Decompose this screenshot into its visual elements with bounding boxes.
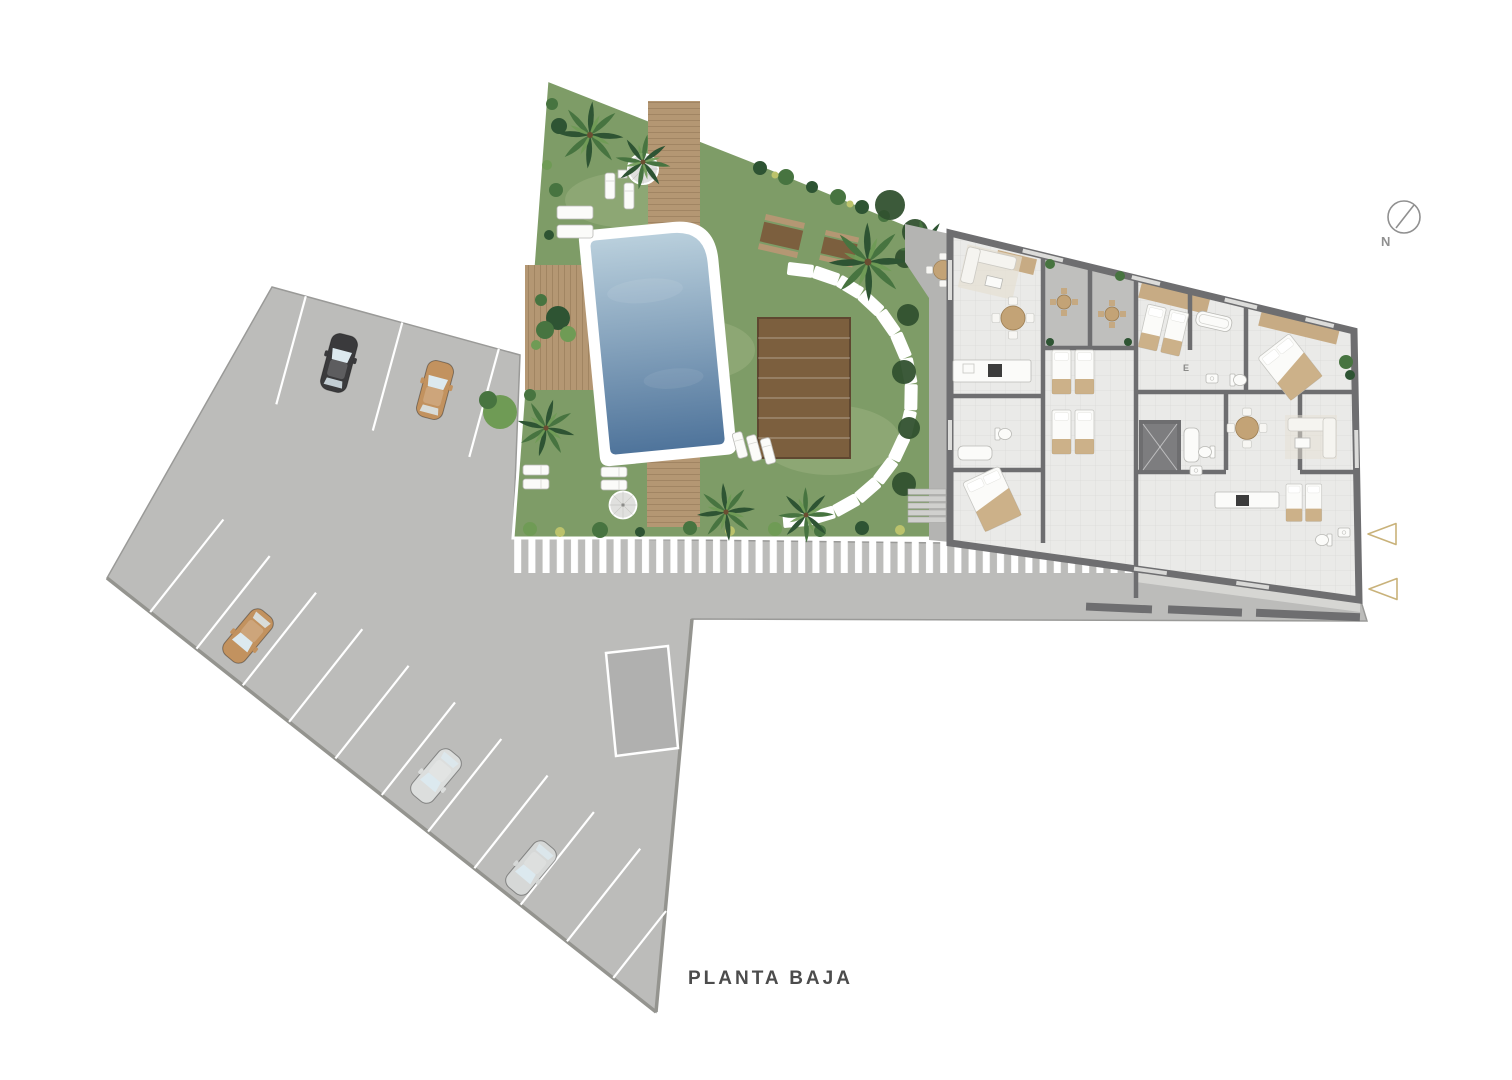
lounger xyxy=(557,225,593,238)
entry-arrows xyxy=(1368,524,1397,600)
north-label: N xyxy=(1381,234,1390,249)
sun-umbrella-2 xyxy=(610,492,637,519)
sofa-living-2 xyxy=(1285,415,1337,459)
ground-marker-rectangle xyxy=(606,646,678,756)
lounger xyxy=(557,206,593,219)
site-plan: E xyxy=(0,0,1512,1080)
lounger xyxy=(523,465,549,475)
entry-arrow-1 xyxy=(1368,524,1396,545)
lounger xyxy=(601,467,627,477)
garden-area xyxy=(479,80,962,554)
lounger xyxy=(605,173,615,199)
lounger xyxy=(601,480,627,490)
lounger xyxy=(523,479,549,489)
terrace-stairs xyxy=(908,489,946,523)
entry-arrow-2 xyxy=(1369,579,1397,600)
plan-title: PLANTA BAJA xyxy=(688,968,853,990)
kitchen-2 xyxy=(1215,492,1279,508)
lounger xyxy=(624,183,634,209)
swimming-pool xyxy=(578,218,737,467)
pergola xyxy=(758,318,850,458)
building: E xyxy=(950,233,1359,600)
elevator-label: E xyxy=(1183,363,1189,373)
floor-plan-canvas: E xyxy=(0,0,1512,1080)
kitchen-1 xyxy=(953,360,1031,382)
north-arrow: N xyxy=(1381,201,1420,249)
